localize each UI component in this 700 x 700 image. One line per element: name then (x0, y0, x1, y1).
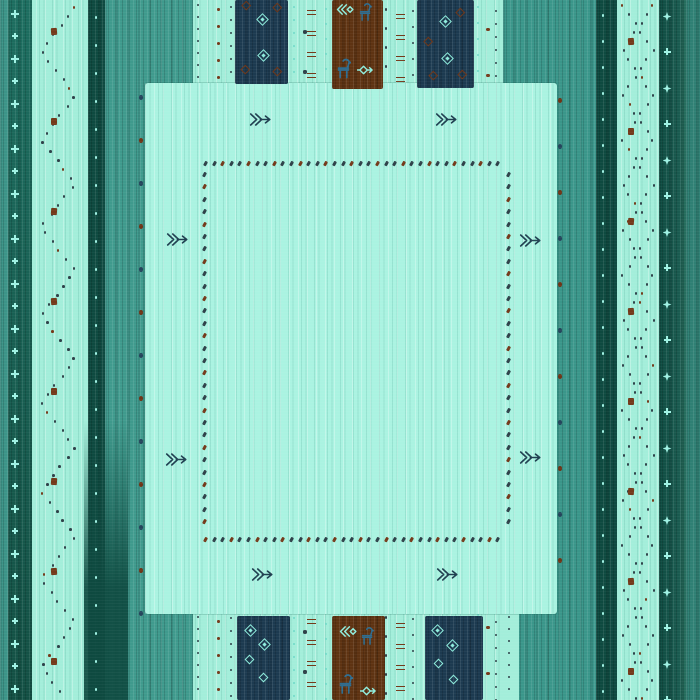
meander-dot (56, 294, 58, 297)
motif-dot (95, 72, 98, 75)
stripe-edge-right (686, 0, 700, 700)
motif-dot (95, 16, 98, 19)
dash-motif (307, 10, 316, 15)
motif-dot (95, 156, 98, 159)
arrowleft-motif (335, 3, 354, 16)
cross-motif (664, 552, 671, 559)
motif-dot (139, 439, 143, 444)
motif-dot (558, 466, 562, 471)
meander-dot (72, 96, 74, 99)
meander-dot (57, 645, 59, 648)
meander-dot (49, 150, 51, 153)
meander-dot (46, 321, 48, 324)
meander-dot (52, 240, 54, 243)
motif-dot (602, 66, 605, 69)
cross-motif (11, 685, 19, 693)
motif-dot (95, 632, 98, 635)
motif-dot (95, 688, 98, 691)
motif-dot (602, 586, 605, 589)
meander-dot (67, 105, 69, 108)
meander-dot (42, 51, 44, 54)
cross-motif (664, 192, 671, 199)
square-motif (51, 28, 57, 35)
motif-dot (558, 144, 562, 149)
motif-dot (217, 688, 220, 691)
cross-motif (12, 33, 18, 39)
stripe-dark-b (596, 0, 617, 700)
cross-motif (11, 235, 19, 243)
square-motif (51, 208, 57, 215)
motif-dot (602, 248, 605, 251)
cross-motif (664, 696, 671, 700)
dash-motif (307, 619, 316, 624)
animal-motif (361, 627, 374, 645)
cross-motif (12, 78, 18, 84)
dash-motif (307, 52, 316, 57)
square-motif (628, 488, 634, 495)
meander-dot (47, 60, 49, 63)
motif-dot (558, 374, 562, 379)
square-motif (628, 128, 634, 135)
motif-dot (217, 671, 220, 674)
cross-motif (664, 624, 671, 631)
meander-dot (46, 483, 48, 486)
dash-motif (396, 644, 405, 649)
cross-motif (11, 100, 19, 108)
motif-dot (217, 59, 220, 62)
motif-dot (602, 170, 605, 173)
motif-dot (602, 222, 605, 225)
meander-dot (49, 501, 51, 504)
motif-dot (95, 128, 98, 131)
meander-dot (61, 519, 63, 522)
motif-dot (139, 181, 143, 186)
motif-dot (139, 310, 143, 315)
dash-motif (307, 682, 316, 687)
meander-dot (72, 357, 74, 360)
square-motif (628, 668, 634, 675)
motif-dot (95, 380, 98, 383)
meander-dot (46, 132, 48, 135)
arrow-motif (519, 232, 541, 249)
motif-dot (95, 604, 98, 607)
meander-dot (68, 87, 70, 90)
meander-dot (72, 618, 74, 621)
motif-dot (217, 620, 220, 623)
cross-motif (12, 303, 18, 309)
arrow-motif (251, 566, 273, 583)
motif-dot (139, 396, 143, 401)
motif-dot (602, 40, 605, 43)
cross-motif (11, 145, 19, 153)
motif-dot (602, 144, 605, 147)
cross-motif (11, 55, 19, 63)
meander-dot (57, 159, 59, 162)
meander-dot (57, 249, 59, 252)
motif-dot (602, 560, 605, 563)
rug-photo (0, 0, 700, 700)
motif-dot (385, 27, 388, 30)
motif-dot (139, 353, 143, 358)
cross-motif (12, 663, 18, 669)
motif-dot (558, 328, 562, 333)
motif-dot (602, 612, 605, 615)
meander-dot (58, 465, 60, 468)
meander-dot (48, 303, 50, 306)
motif-dot (385, 65, 388, 68)
motif-dot (95, 520, 98, 523)
motif-dot (602, 326, 605, 329)
cross-motif (11, 280, 19, 288)
cross-motif (664, 120, 671, 127)
motif-dot (602, 378, 605, 381)
cross-motif (11, 550, 19, 558)
cross-motif (12, 123, 18, 129)
meander-dot (62, 429, 64, 432)
motif-dot (303, 670, 307, 674)
square-motif (51, 298, 57, 305)
meander-dot (64, 546, 66, 549)
motif-dot (139, 95, 143, 100)
arrow-motif (435, 111, 457, 128)
square-motif (628, 398, 634, 405)
motif-dot (217, 637, 220, 640)
motif-dot (95, 240, 98, 243)
cross-motif (12, 393, 18, 399)
motif-dot (95, 268, 98, 271)
square-motif (628, 308, 634, 315)
motif-dot (95, 44, 98, 47)
motif-dot (95, 548, 98, 551)
meander-dot (42, 663, 44, 666)
dash-motif (396, 35, 405, 40)
motif-dot (139, 224, 143, 229)
cross-motif (664, 408, 671, 415)
square-motif (51, 568, 57, 575)
cross-motif (12, 573, 18, 579)
motif-dot (139, 611, 143, 616)
cross-motif (12, 168, 18, 174)
motif-dot (602, 508, 605, 511)
meander-dot (59, 339, 61, 342)
motif-dot (95, 352, 98, 355)
motif-dot (303, 630, 307, 634)
dash-motif (396, 56, 405, 61)
motif-dot (139, 482, 143, 487)
meander-dot (52, 564, 54, 567)
motif-dot (217, 42, 220, 45)
motif-dot (385, 654, 388, 657)
meander-dot (68, 366, 70, 369)
meander-dot (67, 456, 69, 459)
meander-dot (68, 276, 70, 279)
motif-dot (385, 673, 388, 676)
motif-dot (95, 464, 98, 467)
meander-dot (46, 672, 48, 675)
square-motif (51, 478, 57, 485)
meander-dot (73, 537, 75, 540)
motif-dot (95, 296, 98, 299)
meander-dot (41, 141, 43, 144)
motif-dot (95, 660, 98, 663)
motif-dot (95, 184, 98, 187)
meander-dot (73, 447, 75, 450)
animal-motif (359, 3, 372, 21)
meander-dot (62, 285, 64, 288)
dash-motif (307, 73, 316, 78)
motif-dot (217, 8, 220, 11)
arrow-motif (249, 111, 271, 128)
arrow-motif (519, 449, 541, 466)
motif-dot (602, 196, 605, 199)
motif-dot (602, 352, 605, 355)
meander-dot (55, 69, 57, 72)
dash-motif (307, 661, 316, 666)
motif-dot (558, 190, 562, 195)
motif-dot (95, 436, 98, 439)
motif-dot (95, 576, 98, 579)
cross-motif (664, 264, 671, 271)
motif-dot (385, 616, 388, 619)
light-patch-bottom-right (503, 612, 519, 700)
arrowdia-motif (356, 63, 373, 77)
cross-motif (11, 370, 19, 378)
dash-motif (396, 686, 405, 691)
arrowdia-motif (359, 684, 376, 698)
meander-dot (69, 528, 71, 531)
motif-dot (602, 430, 605, 433)
motif-dot (385, 635, 388, 638)
cross-motif (12, 213, 18, 219)
arrow-motif (436, 566, 458, 583)
meander-dot (53, 384, 55, 387)
motif-dot (217, 25, 220, 28)
arrow-motif (166, 231, 188, 248)
cross-motif (664, 480, 671, 487)
meander-dot (42, 312, 44, 315)
cross-motif (11, 595, 19, 603)
motif-dot (558, 558, 562, 563)
motif-dot (602, 456, 605, 459)
motif-dot (558, 282, 562, 287)
cross-motif (12, 483, 18, 489)
square-motif (628, 38, 634, 45)
dash-motif (396, 14, 405, 19)
cross-motif (664, 48, 671, 55)
motif-dot (95, 492, 98, 495)
dash-motif (396, 665, 405, 670)
cross-motif (11, 505, 19, 513)
motif-dot (139, 568, 143, 573)
meander-dot (58, 555, 60, 558)
cross-motif (12, 528, 18, 534)
motif-dot (602, 274, 605, 277)
stripe-dark-right (659, 0, 686, 700)
meander-dot (58, 114, 60, 117)
cross-motif (11, 190, 19, 198)
meander-dot (67, 438, 69, 441)
motif-dot (139, 267, 143, 272)
motif-dot (385, 692, 388, 695)
meander-dot (56, 510, 58, 513)
meander-dot (67, 348, 69, 351)
motif-dot (602, 300, 605, 303)
meander-dot (44, 231, 46, 234)
meander-dot (63, 78, 65, 81)
meander-dot (52, 474, 54, 477)
dash-motif (396, 77, 405, 82)
cross-motif (12, 438, 18, 444)
motif-dot (602, 664, 605, 667)
motif-dot (602, 690, 605, 693)
motif-dot (602, 638, 605, 641)
cross-motif (11, 415, 19, 423)
meander-dot (72, 186, 74, 189)
dark-stripe-bottom-flare (84, 420, 128, 700)
meander-dot (54, 420, 56, 423)
motif-dot (558, 98, 562, 103)
meander-dot (48, 654, 50, 657)
motif-dot (95, 100, 98, 103)
arrow-motif (165, 451, 187, 468)
arrowleft-motif (338, 625, 357, 638)
motif-dot (139, 525, 143, 530)
motif-dot (217, 76, 220, 79)
meander-dot (73, 267, 75, 270)
square-motif (51, 118, 57, 125)
meander-dot (62, 375, 64, 378)
square-motif (51, 658, 57, 665)
stripe-edge-left (0, 0, 8, 700)
meander-dot (41, 492, 43, 495)
motif-dot (602, 482, 605, 485)
motif-dot (95, 212, 98, 215)
cross-motif (12, 348, 18, 354)
cross-motif (11, 640, 19, 648)
meander-dot (51, 330, 53, 333)
motif-dot (385, 46, 388, 49)
square-motif (628, 578, 634, 585)
motif-dot (602, 404, 605, 407)
cross-motif (11, 10, 19, 18)
cross-motif (11, 325, 19, 333)
motif-dot (602, 118, 605, 121)
motif-dot (558, 420, 562, 425)
meander-dot (43, 573, 45, 576)
square-motif (51, 388, 57, 395)
motif-dot (95, 408, 98, 411)
motif-dot (602, 534, 605, 537)
square-motif (628, 218, 634, 225)
meander-dot (65, 258, 67, 261)
cross-motif (11, 460, 19, 468)
cross-motif (12, 618, 18, 624)
animal-motif (337, 58, 351, 79)
motif-dot (95, 324, 98, 327)
motif-dot (139, 138, 143, 143)
dash-motif (396, 623, 405, 628)
meander-dot (51, 681, 53, 684)
cross-motif (664, 336, 671, 343)
motif-dot (602, 14, 605, 17)
motif-dot (558, 236, 562, 241)
motif-dot (385, 8, 388, 11)
animal-motif (339, 674, 353, 694)
meander-dot (59, 690, 61, 693)
motif-dot (217, 654, 220, 657)
dash-motif (307, 640, 316, 645)
cross-motif (12, 258, 18, 264)
motif-dot (558, 512, 562, 517)
dash-motif (307, 31, 316, 36)
motif-dot (602, 92, 605, 95)
